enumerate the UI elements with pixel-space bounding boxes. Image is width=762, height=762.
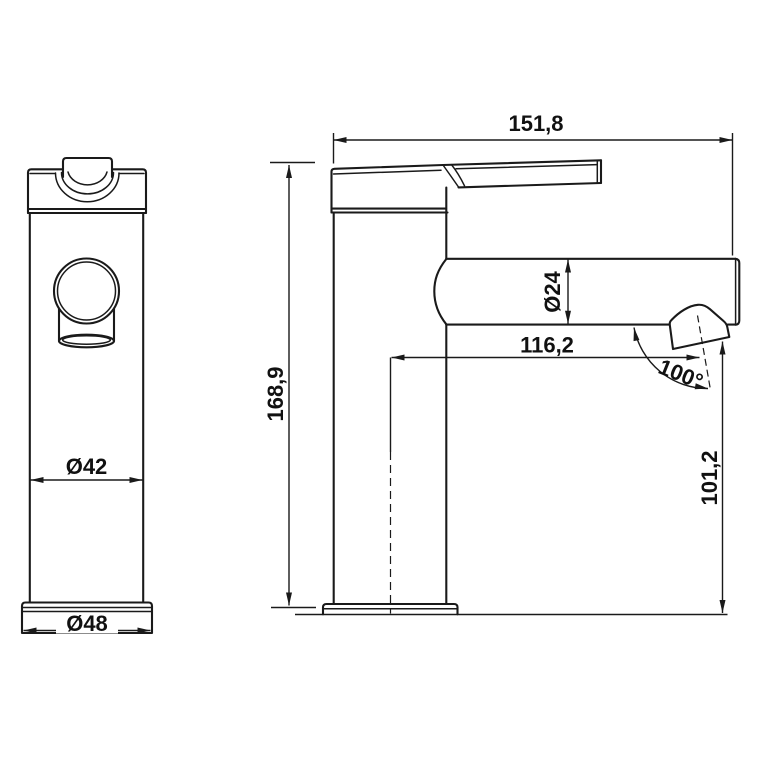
front-spout-circle-inner	[58, 262, 116, 320]
dim-label-base-diameter: Ø48	[66, 611, 108, 636]
side-cap-top-inner	[334, 170, 442, 174]
dim-overall-length: 151,8	[334, 111, 733, 256]
dim-label-outlet-height: 101,2	[697, 450, 722, 505]
dim-spout-reach: 116,2	[392, 333, 700, 361]
front-handle-tab	[63, 158, 112, 177]
front-handle-arc-inner	[68, 172, 107, 185]
dim-label-overall-length: 151,8	[508, 111, 563, 136]
front-spout-mouth-outer	[59, 335, 114, 348]
front-spout-mouth-inner	[63, 336, 111, 344]
front-spout-circle-outer	[54, 259, 119, 324]
dim-label-overall-height: 168,9	[263, 366, 288, 421]
dim-label-body-diameter: Ø42	[66, 454, 108, 479]
dim-label-spout-reach: 116,2	[520, 333, 574, 358]
technical-drawing-page: Ø42 Ø48	[0, 0, 762, 762]
dim-spout-diameter: Ø24	[540, 260, 571, 324]
front-cap	[28, 169, 146, 213]
front-handle-arc-outer	[56, 173, 120, 202]
dim-label-spout-diameter: Ø24	[540, 270, 565, 312]
side-view: 151,8 168,9 Ø24 116,2	[263, 111, 739, 615]
dim-label-spout-angle: 100°	[655, 354, 707, 394]
side-lever	[443, 160, 601, 187]
dim-body-diameter: Ø42	[31, 454, 143, 483]
faucet-technical-drawing: Ø42 Ø48	[0, 0, 762, 762]
dim-overall-height: 168,9	[263, 163, 316, 608]
front-view: Ø42 Ø48	[22, 158, 152, 636]
